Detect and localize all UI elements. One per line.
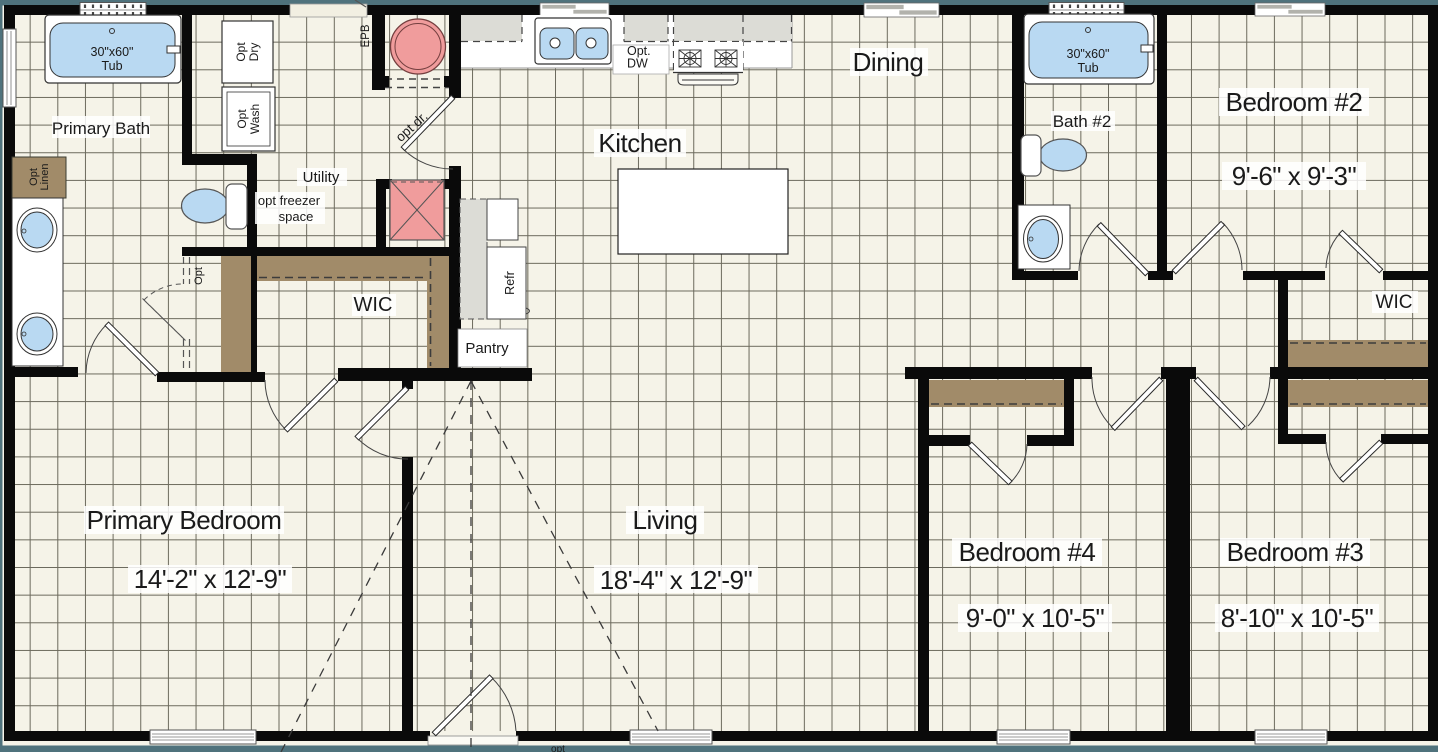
svg-text:Dry: Dry bbox=[247, 43, 261, 62]
svg-text:30"x60": 30"x60" bbox=[91, 45, 134, 59]
svg-text:DW: DW bbox=[627, 57, 648, 71]
svg-text:Opt: Opt bbox=[235, 109, 249, 129]
svg-text:opt freezer: opt freezer bbox=[258, 193, 321, 208]
svg-text:Primary Bedroom: Primary Bedroom bbox=[87, 505, 282, 535]
svg-text:WIC: WIC bbox=[354, 294, 393, 316]
svg-text:Bedroom #2: Bedroom #2 bbox=[1226, 87, 1363, 117]
svg-text:30"x60": 30"x60" bbox=[1067, 47, 1110, 61]
svg-text:Linen: Linen bbox=[39, 164, 51, 191]
svg-text:EPB: EPB bbox=[360, 24, 372, 47]
svg-text:Tub: Tub bbox=[1077, 61, 1098, 75]
svg-text:Tub: Tub bbox=[101, 59, 122, 73]
svg-text:18'-4" x 12'-9": 18'-4" x 12'-9" bbox=[600, 565, 753, 595]
svg-text:Kitchen: Kitchen bbox=[598, 128, 681, 158]
svg-text:Refr: Refr bbox=[503, 271, 517, 295]
svg-text:Opt: Opt bbox=[193, 267, 205, 285]
svg-text:Utility: Utility bbox=[303, 169, 340, 186]
svg-text:14'-2" x 12'-9": 14'-2" x 12'-9" bbox=[134, 564, 287, 594]
svg-text:Wash: Wash bbox=[248, 104, 262, 134]
svg-text:opt: opt bbox=[551, 744, 565, 752]
svg-text:Primary Bath: Primary Bath bbox=[52, 119, 150, 138]
svg-text:9'-0" x 10'-5": 9'-0" x 10'-5" bbox=[966, 603, 1105, 633]
svg-text:WIC: WIC bbox=[1376, 292, 1413, 313]
svg-text:Pantry: Pantry bbox=[465, 340, 509, 357]
svg-text:Bath #2: Bath #2 bbox=[1053, 112, 1112, 131]
svg-text:8'-10" x 10'-5": 8'-10" x 10'-5" bbox=[1221, 603, 1374, 633]
svg-text:space: space bbox=[279, 209, 314, 224]
svg-text:Living: Living bbox=[633, 505, 698, 535]
svg-text:Bedroom #4: Bedroom #4 bbox=[959, 537, 1096, 567]
svg-text:Bedroom #3: Bedroom #3 bbox=[1227, 537, 1364, 567]
svg-text:Dining: Dining bbox=[853, 47, 924, 77]
svg-text:9'-6" x 9'-3": 9'-6" x 9'-3" bbox=[1232, 161, 1357, 191]
svg-text:Opt: Opt bbox=[234, 42, 248, 62]
